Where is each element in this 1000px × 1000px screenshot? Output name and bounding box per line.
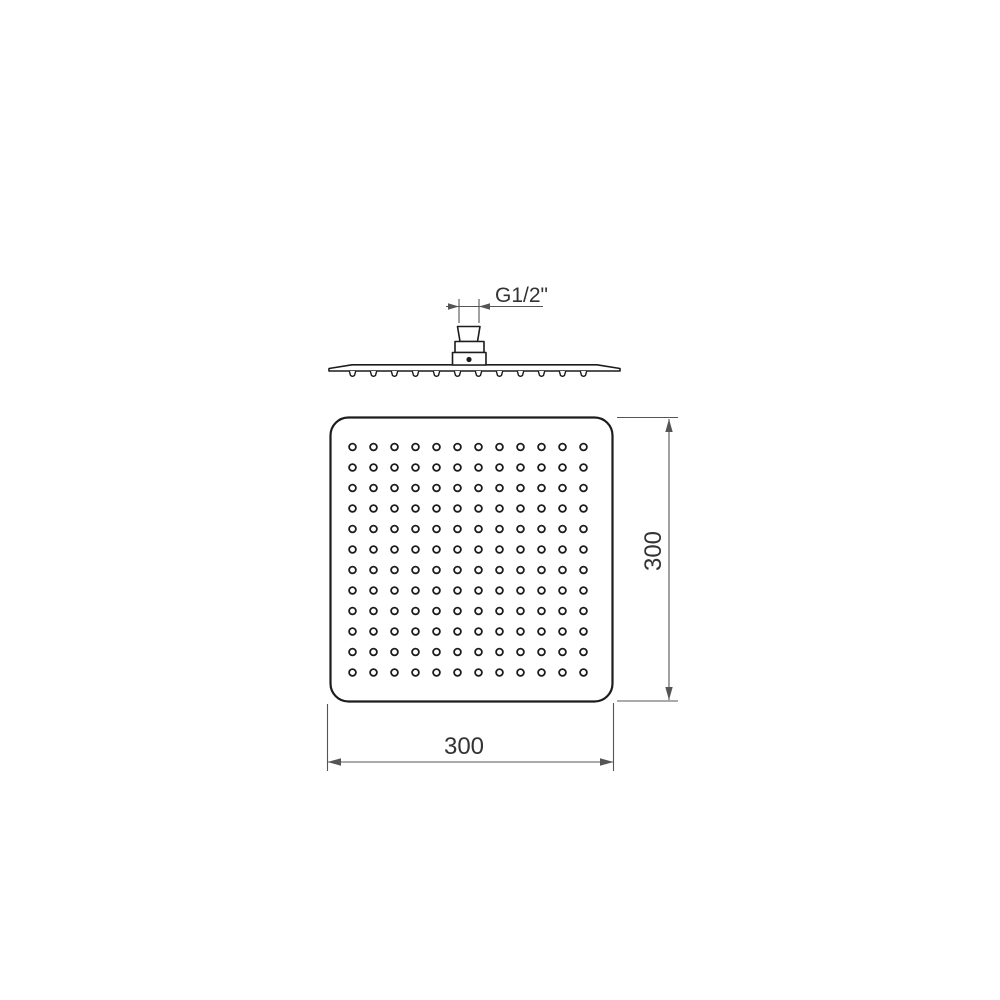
nozzle-hole (517, 567, 524, 574)
nozzle-hole (454, 649, 461, 656)
nozzle-hole (454, 546, 461, 553)
nozzle-hole (580, 505, 587, 512)
nozzle-hole (370, 669, 377, 676)
side-nozzle (538, 371, 544, 376)
connector-nut (458, 327, 481, 342)
side-nozzle (433, 371, 439, 376)
nozzle-hole (559, 649, 566, 656)
nozzle-hole (559, 587, 566, 594)
nozzle-hole (538, 526, 545, 533)
nozzle-hole (454, 567, 461, 574)
nozzle-hole (475, 546, 482, 553)
nozzle-hole (475, 485, 482, 492)
nozzle-hole (391, 669, 398, 676)
nozzle-hole (475, 526, 482, 533)
nozzle-hole (580, 444, 587, 451)
nozzle-hole (370, 567, 377, 574)
nozzle-hole (370, 546, 377, 553)
nozzle-hole (538, 444, 545, 451)
side-nozzle (391, 371, 397, 376)
side-nozzle (475, 371, 481, 376)
nozzle-hole (433, 608, 440, 615)
side-nozzle (454, 371, 460, 376)
nozzle-hole (391, 587, 398, 594)
side-nozzle (580, 371, 586, 376)
nozzle-hole (454, 669, 461, 676)
nozzle-hole (433, 649, 440, 656)
nozzle-hole (412, 464, 419, 471)
side-view (329, 327, 620, 377)
nozzle-hole (349, 628, 356, 635)
nozzle-hole (454, 444, 461, 451)
nozzle-hole (538, 546, 545, 553)
connector-inlet-dot (466, 357, 471, 362)
nozzle-hole (370, 526, 377, 533)
nozzle-hole (538, 485, 545, 492)
nozzle-hole (433, 567, 440, 574)
nozzle-hole (349, 546, 356, 553)
nozzle-hole (454, 464, 461, 471)
nozzle-hole (433, 587, 440, 594)
nozzle-hole (391, 546, 398, 553)
nozzle-hole (580, 546, 587, 553)
height-dimension: 300 (617, 418, 678, 702)
side-nozzle (496, 371, 502, 376)
nozzle-hole (580, 526, 587, 533)
nozzle-hole (349, 505, 356, 512)
nozzle-hole (580, 649, 587, 656)
nozzle-hole (433, 444, 440, 451)
nozzle-hole (370, 649, 377, 656)
nozzle-hole (559, 546, 566, 553)
nozzle-hole (475, 444, 482, 451)
nozzle-hole (475, 567, 482, 574)
shower-face (331, 418, 613, 702)
nozzle-hole (391, 464, 398, 471)
nozzle-hole (391, 505, 398, 512)
nozzle-hole (496, 587, 503, 594)
nozzle-hole (475, 669, 482, 676)
nozzle-hole (454, 526, 461, 533)
nozzle-hole (559, 628, 566, 635)
nozzle-hole (496, 669, 503, 676)
nozzle-hole (391, 649, 398, 656)
nozzle-hole (517, 444, 524, 451)
nozzle-hole (391, 567, 398, 574)
nozzle-hole (433, 669, 440, 676)
nozzle-hole (538, 608, 545, 615)
nozzle-hole (370, 444, 377, 451)
width-label: 300 (444, 733, 484, 760)
side-nozzle (370, 371, 376, 376)
nozzle-hole (370, 505, 377, 512)
width-dimension: 300 (328, 703, 614, 771)
nozzle-hole (475, 649, 482, 656)
nozzle-hole (559, 669, 566, 676)
nozzle-hole (559, 526, 566, 533)
nozzle-hole (538, 464, 545, 471)
shower-head-drawing: G1/2" 300 300 (0, 0, 1000, 1000)
nozzle-hole (496, 505, 503, 512)
nozzle-hole (559, 505, 566, 512)
nozzle-hole (349, 526, 356, 533)
height-label: 300 (640, 531, 667, 571)
nozzle-hole (412, 628, 419, 635)
nozzle-hole (412, 526, 419, 533)
nozzle-hole (370, 464, 377, 471)
thread-arrow-right (479, 303, 490, 310)
nozzle-hole (370, 628, 377, 635)
nozzle-hole (517, 669, 524, 676)
nozzle-hole (433, 464, 440, 471)
technical-drawing-canvas: G1/2" 300 300 (0, 0, 1000, 1000)
thread-arrow-left (448, 303, 459, 310)
nozzle-hole (517, 628, 524, 635)
nozzle-hole (349, 444, 356, 451)
nozzle-hole (496, 464, 503, 471)
nozzle-hole (580, 587, 587, 594)
nozzle-hole (496, 485, 503, 492)
nozzle-hole (433, 628, 440, 635)
nozzle-hole (412, 649, 419, 656)
nozzle-hole (349, 567, 356, 574)
nozzle-hole (475, 505, 482, 512)
front-view (331, 418, 613, 702)
side-nozzle (517, 371, 523, 376)
nozzle-hole (538, 567, 545, 574)
nozzle-hole (580, 669, 587, 676)
nozzle-hole (538, 649, 545, 656)
nozzle-hole (349, 587, 356, 594)
nozzle-hole (580, 567, 587, 574)
nozzle-hole (517, 505, 524, 512)
nozzle-hole (349, 608, 356, 615)
nozzle-hole (580, 464, 587, 471)
nozzle-hole (559, 567, 566, 574)
nozzle-hole (412, 546, 419, 553)
nozzle-hole (496, 608, 503, 615)
nozzle-hole (349, 649, 356, 656)
nozzle-hole (559, 485, 566, 492)
nozzle-hole (580, 628, 587, 635)
side-nozzle (349, 371, 355, 376)
nozzle-hole (433, 546, 440, 553)
nozzle-hole (412, 444, 419, 451)
height-arrow-bottom (665, 687, 672, 700)
nozzle-hole (538, 505, 545, 512)
nozzle-hole (580, 608, 587, 615)
nozzle-hole (370, 608, 377, 615)
nozzle-hole (517, 546, 524, 553)
nozzle-hole (538, 628, 545, 635)
nozzle-hole (412, 505, 419, 512)
connector-collar (455, 342, 484, 353)
width-arrow-right (600, 758, 614, 765)
nozzle-hole (475, 628, 482, 635)
nozzle-hole (559, 464, 566, 471)
nozzle-hole (349, 485, 356, 492)
nozzle-hole (454, 608, 461, 615)
side-nozzle (412, 371, 418, 376)
nozzle-hole (391, 485, 398, 492)
nozzle-hole (412, 587, 419, 594)
nozzle-hole (475, 587, 482, 594)
nozzle-hole (412, 669, 419, 676)
nozzle-hole (517, 464, 524, 471)
nozzle-hole (475, 608, 482, 615)
nozzle-hole (517, 587, 524, 594)
nozzle-hole (538, 669, 545, 676)
nozzle-hole (517, 649, 524, 656)
nozzle-hole (496, 628, 503, 635)
width-arrow-left (328, 758, 342, 765)
nozzle-hole (496, 546, 503, 553)
thread-size-label: G1/2" (495, 284, 548, 307)
nozzle-hole (454, 628, 461, 635)
nozzle-hole (391, 444, 398, 451)
nozzle-hole (454, 505, 461, 512)
nozzle-hole (433, 485, 440, 492)
nozzle-hole (370, 485, 377, 492)
nozzle-hole (475, 464, 482, 471)
nozzle-hole (370, 587, 377, 594)
nozzle-hole (412, 485, 419, 492)
nozzle-hole (496, 444, 503, 451)
nozzle-hole (349, 669, 356, 676)
nozzle-hole (559, 608, 566, 615)
side-nozzle (559, 371, 565, 376)
nozzle-hole (433, 526, 440, 533)
nozzle-hole (349, 464, 356, 471)
nozzle-hole (454, 587, 461, 594)
nozzle-hole (433, 505, 440, 512)
nozzle-hole (454, 485, 461, 492)
nozzle-hole (496, 649, 503, 656)
nozzle-hole (496, 567, 503, 574)
nozzle-hole (412, 608, 419, 615)
nozzle-hole (391, 526, 398, 533)
height-arrow-top (665, 419, 672, 432)
nozzle-hole (412, 567, 419, 574)
nozzle-hole (496, 526, 503, 533)
nozzle-hole (517, 485, 524, 492)
nozzle-hole (538, 587, 545, 594)
nozzle-hole (559, 444, 566, 451)
nozzle-hole (580, 485, 587, 492)
nozzle-hole (517, 608, 524, 615)
nozzle-hole (391, 628, 398, 635)
nozzle-hole (517, 526, 524, 533)
thread-dimension: G1/2" (446, 284, 548, 323)
nozzle-hole (391, 608, 398, 615)
